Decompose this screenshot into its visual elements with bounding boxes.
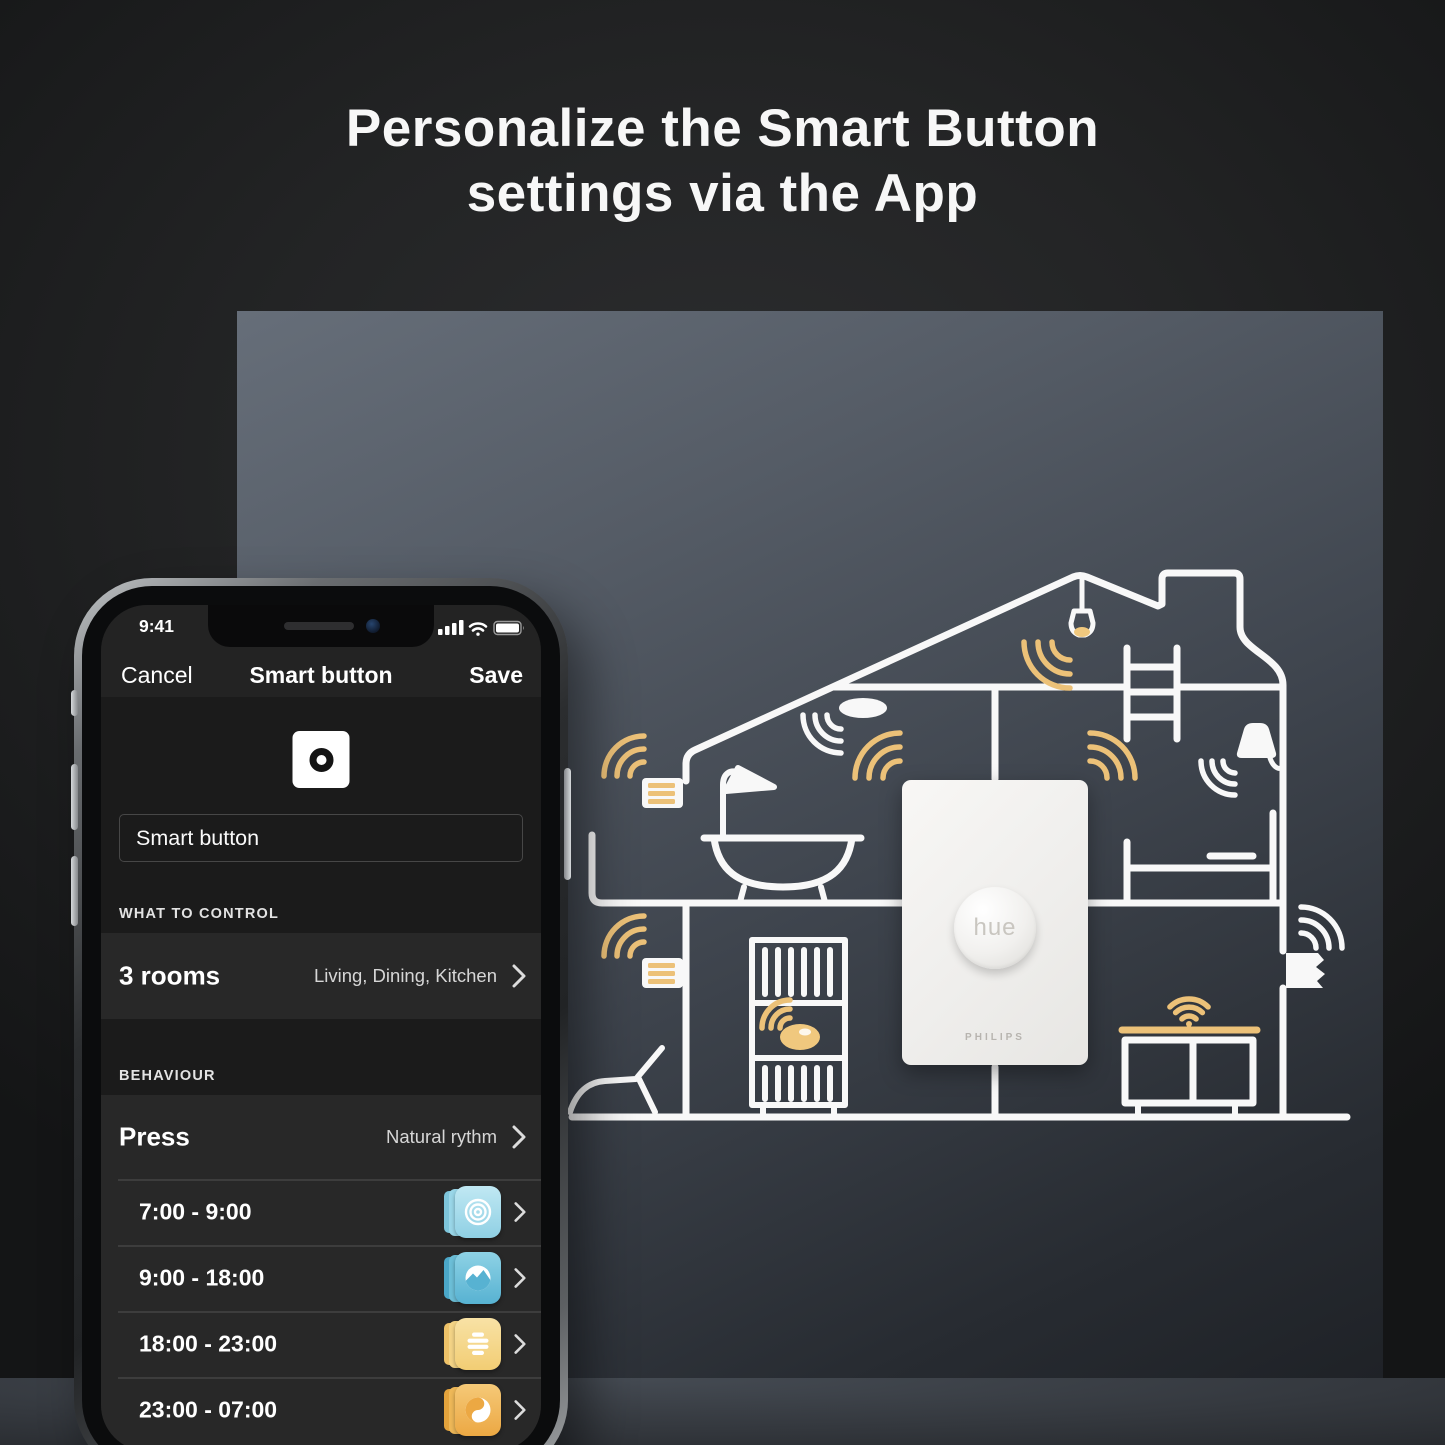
section-header-behaviour: BEHAVIOUR [119,1068,216,1084]
ceiling-light-icon [839,698,887,718]
schedule-time: 18:00 - 23:00 [139,1331,277,1358]
hue-button: hue [954,887,1036,969]
schedule-row[interactable]: 7:00 - 9:00 [101,1179,541,1245]
wall-light-icon [642,958,683,988]
smart-bulb-icon [780,1024,820,1050]
divider [118,1377,541,1379]
read-glyph [463,1329,493,1359]
wall-light-icon [642,778,683,808]
brand-label: PHILIPS [902,1032,1088,1043]
chevron-right-icon [512,964,526,988]
status-icons [438,618,526,638]
phone-notch [208,605,434,647]
chevron-right-icon [514,1400,526,1421]
scene-icon-concentrate [444,1252,501,1304]
wifi-waves-icon [855,733,900,778]
wifi-waves-icon [604,916,644,956]
press-value: Natural rythm [386,1126,497,1148]
volume-up-button [71,764,78,830]
concentrate-glyph [463,1263,493,1293]
energize-glyph [463,1197,493,1227]
chair-icon [570,1048,662,1112]
smart-button-device: hue PHILIPS [902,780,1088,1065]
wifi-waves-icon [604,736,644,776]
battery-icon [494,622,524,635]
shower-icon [723,768,774,838]
behaviour-panel: Press Natural rythm 7:00 - 9:00 [101,1095,541,1445]
press-label: Press [119,1122,190,1153]
schedule-time: 9:00 - 18:00 [139,1265,264,1292]
schedule-row[interactable]: 23:00 - 07:00 [101,1377,541,1443]
front-camera [366,619,380,633]
ladder-icon [1127,648,1177,739]
device-name-value: Smart button [136,826,259,851]
press-row[interactable]: Press Natural rythm [101,1095,541,1179]
bed-icon [1127,813,1273,903]
status-time: 9:41 [139,616,174,637]
product-image: Personalize the Smart Button settings vi… [0,0,1445,1445]
wall-sconce-shade-icon [1237,723,1276,758]
divider [118,1311,541,1313]
page-title: Personalize the Smart Button settings vi… [0,96,1445,226]
save-button[interactable]: Save [469,662,523,689]
wifi-waves-icon [803,715,841,753]
schedule-time: 7:00 - 9:00 [139,1199,252,1226]
chevron-right-icon [514,1334,526,1355]
outdoor-light-icon [1286,953,1325,988]
volume-down-button [71,856,78,926]
chevron-right-icon [512,1125,526,1149]
nightlight-glyph [463,1395,493,1425]
mute-switch [71,690,78,716]
divider [118,1179,541,1181]
wifi-waves-icon [1301,907,1342,948]
device-name-input[interactable]: Smart button [119,814,523,862]
tv-cabinet-icon [1125,1040,1253,1115]
scene-icon-nightlight [444,1384,501,1436]
button-ring-glyph [309,748,333,772]
chevron-right-icon [514,1268,526,1289]
wifi-waves-icon [1201,761,1235,795]
scene-icon-read [444,1318,501,1370]
smart-button-icon [293,731,350,788]
pendant-light-icon [1071,578,1093,635]
phone-bezel: 9:41 [82,586,560,1445]
schedule-row[interactable]: 9:00 - 18:00 [101,1245,541,1311]
bulb-glow [1074,627,1090,637]
schedule-time: 23:00 - 07:00 [139,1397,277,1424]
wifi-waves-icon [1170,999,1208,1027]
wifi-icon [470,624,486,636]
signal-bars-icon [438,620,464,635]
power-button [564,768,571,880]
divider [118,1245,541,1247]
wifi-waves-icon [1024,642,1070,688]
rooms-row[interactable]: 3 rooms Living, Dining, Kitchen [101,933,541,1019]
rooms-list: Living, Dining, Kitchen [314,965,497,987]
app-screen: 9:41 [101,605,541,1445]
scene-icon-energize [444,1186,501,1238]
hue-button-label: hue [973,914,1016,942]
speaker-slot [284,622,354,630]
section-header-what-to-control: WHAT TO CONTROL [119,906,279,922]
chevron-right-icon [514,1202,526,1223]
bathtub-icon [704,838,861,902]
rooms-count: 3 rooms [119,961,220,992]
schedule-row[interactable]: 18:00 - 23:00 [101,1311,541,1377]
phone-mockup: 9:41 [74,578,568,1445]
